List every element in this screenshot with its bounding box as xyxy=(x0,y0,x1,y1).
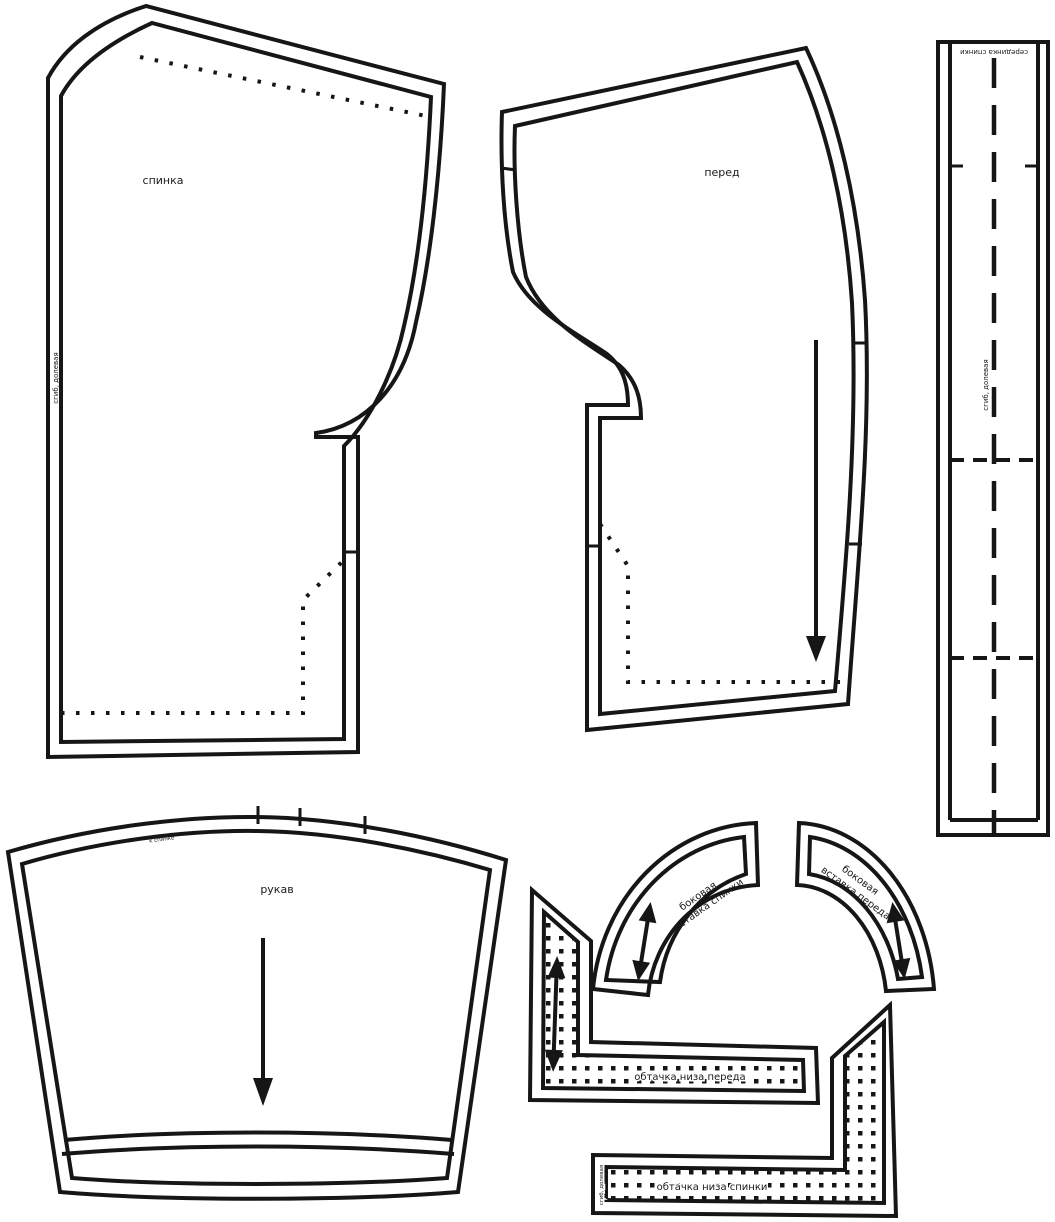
strip-fold-label: сгиб, долевая xyxy=(982,359,990,410)
back-facing-label: обтачка низа спинки xyxy=(657,1182,768,1193)
piece-sleeve: рукав к спинке xyxy=(8,806,506,1199)
sleeve-hem-line-lower xyxy=(62,1147,454,1155)
insert-front-seam-line xyxy=(809,837,922,979)
piece-front: перед xyxy=(501,48,867,730)
front-outer-outline xyxy=(501,48,866,730)
piece-side-insert-back: боковая вставка спинки xyxy=(593,823,758,995)
pattern-sheet: спинка сгиб, долевая перед серединка спи… xyxy=(0,0,1055,1222)
back-fold-label: сгиб, долевая xyxy=(52,352,60,403)
sleeve-hem-line-upper xyxy=(64,1133,452,1141)
piece-center-strip: серединка спинки сгиб, долевая xyxy=(938,42,1048,835)
piece-side-insert-front: боковая вставка переда xyxy=(797,823,934,991)
front-hem-stitch-line xyxy=(600,524,846,682)
sleeve-outer-outline xyxy=(8,817,506,1199)
pattern-canvas: спинка сгиб, долевая перед серединка спи… xyxy=(0,0,1055,1222)
front-grain-arrowhead xyxy=(806,636,826,662)
back-shoulder-stitch-line xyxy=(140,57,426,116)
back-facing-fold-label: сгиб, долевая xyxy=(599,1165,605,1205)
piece-back-hem-facing: обтачка низа спинки сгиб, долевая xyxy=(593,1005,896,1216)
front-neck-notch xyxy=(501,168,516,170)
sleeve-grain-arrowhead xyxy=(253,1078,273,1106)
front-seam-line xyxy=(514,62,853,714)
sleeve-label: рукав xyxy=(260,883,293,896)
back-seam-line xyxy=(61,23,431,742)
back-hem-stitch-line xyxy=(61,560,344,713)
front-label: перед xyxy=(704,166,740,179)
front-facing-label: обтачка низа переда xyxy=(634,1072,745,1083)
piece-back: спинка сгиб, долевая xyxy=(48,6,444,757)
insert-back-outer-outline xyxy=(593,823,758,995)
back-label: спинка xyxy=(143,174,184,187)
insert-back-seam-line xyxy=(606,837,746,982)
strip-top-label: серединка спинки xyxy=(960,48,1028,56)
